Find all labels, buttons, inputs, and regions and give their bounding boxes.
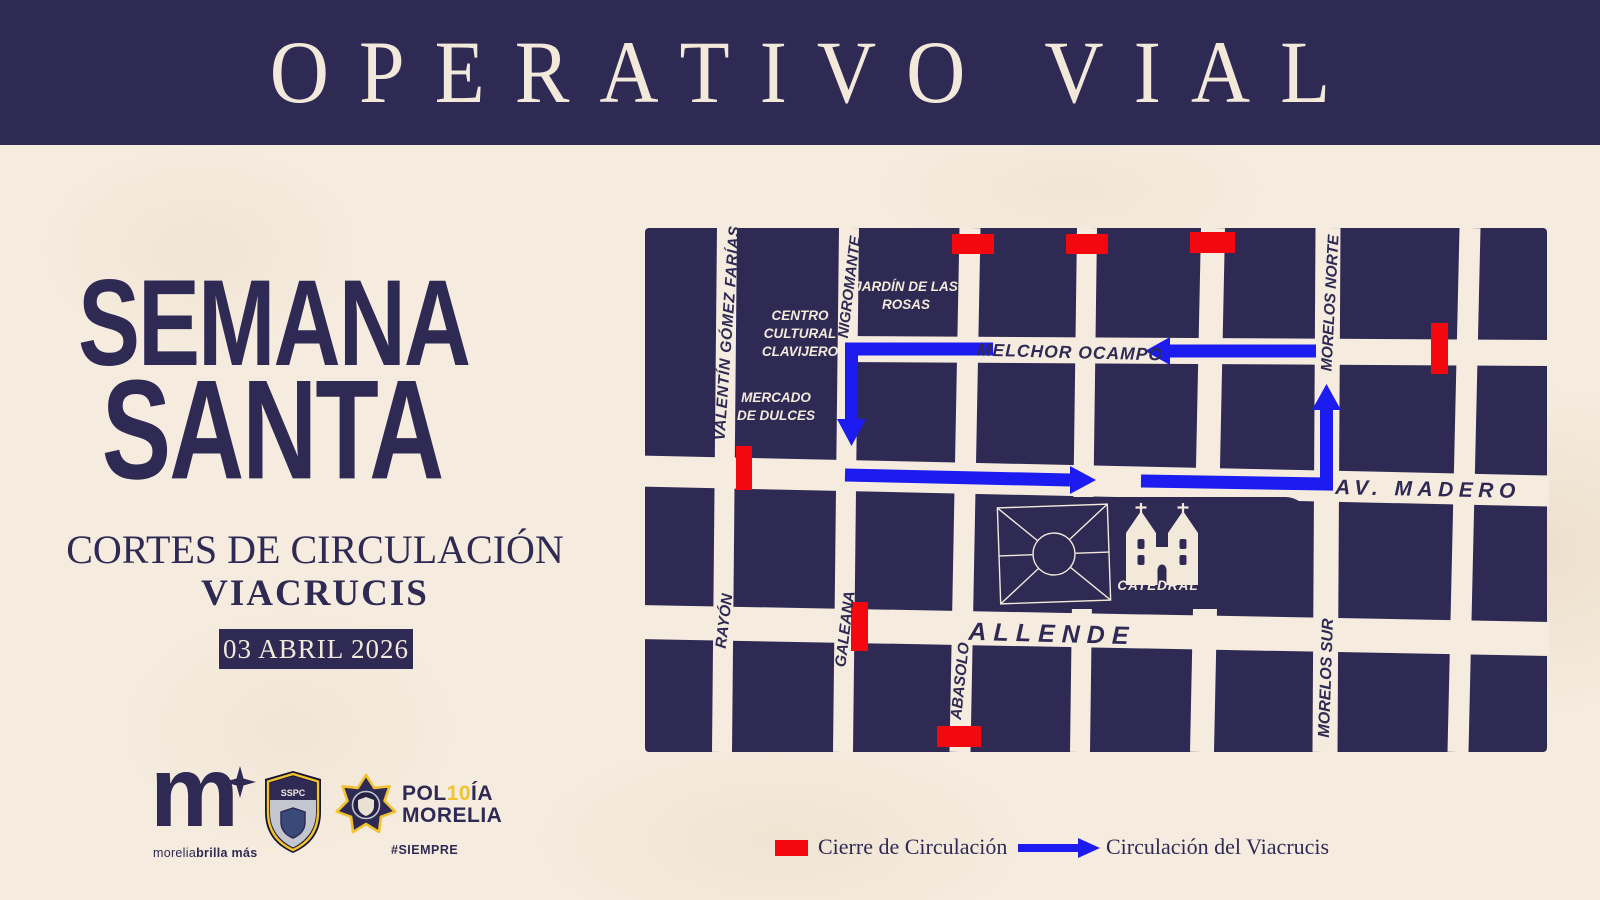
place-label-centro-2: CULTURAL — [764, 326, 836, 341]
closure-marker — [937, 726, 981, 747]
place-label-centro-1: CENTRO — [772, 308, 829, 323]
place-label-jardin-2: ROSAS — [882, 297, 930, 312]
place-label-mercado-2: DE DULCES — [737, 408, 815, 423]
closure-marker — [1066, 234, 1108, 254]
police-star-badge — [333, 766, 399, 850]
date-box: 03 ABRIL 2026 — [219, 629, 413, 669]
hashtag-siempre: #SIEMPRE — [391, 843, 458, 857]
sspc-shield-badge: SSPC — [262, 770, 324, 854]
sparkle-icon — [222, 764, 258, 800]
closure-marker — [952, 234, 994, 254]
place-label-mercado-1: MERCADO — [741, 390, 811, 405]
subtitle-cortes: CORTES DE CIRCULACIÓN — [55, 526, 575, 573]
legend-closure-swatch — [775, 840, 808, 856]
closure-marker — [736, 446, 752, 490]
place-label-jardin-1: JARDÍN DE LAS — [854, 279, 958, 294]
policia-morelia-logo: POL10ÍA MORELIA — [402, 783, 502, 827]
place-label-catedral: CATEDRAL — [1117, 578, 1198, 593]
date-label: 03 ABRIL 2026 — [223, 634, 409, 665]
route-madero-east-a — [845, 475, 1070, 480]
place-label-centro-3: CLAVIJERO — [762, 344, 839, 359]
closure-marker — [1190, 232, 1235, 253]
street-label-allende: ALLENDE — [967, 618, 1136, 650]
closure-marker — [1431, 323, 1448, 374]
subtitle-viacrucis: VIACRUCIS — [55, 572, 575, 615]
legend-route-label: Circulación del Viacrucis — [1106, 834, 1329, 860]
legend-closure-label: Cierre de Circulación — [818, 834, 1007, 860]
page-title: OPERATIVO VIAL — [240, 22, 1360, 124]
street-label-av-madero: AV. MADERO — [1334, 476, 1521, 503]
legend-route-arrow — [1016, 838, 1102, 858]
sspc-label: SSPC — [281, 788, 306, 798]
header-banner: OPERATIVO VIAL — [0, 0, 1600, 145]
title-santa: SANTA — [78, 360, 466, 501]
street-map: VALENTÍN GÓMEZ FARÍAS NIGROMANTE MORELOS… — [600, 195, 1600, 795]
morelia-tagline: moreliabrilla más — [153, 846, 257, 860]
